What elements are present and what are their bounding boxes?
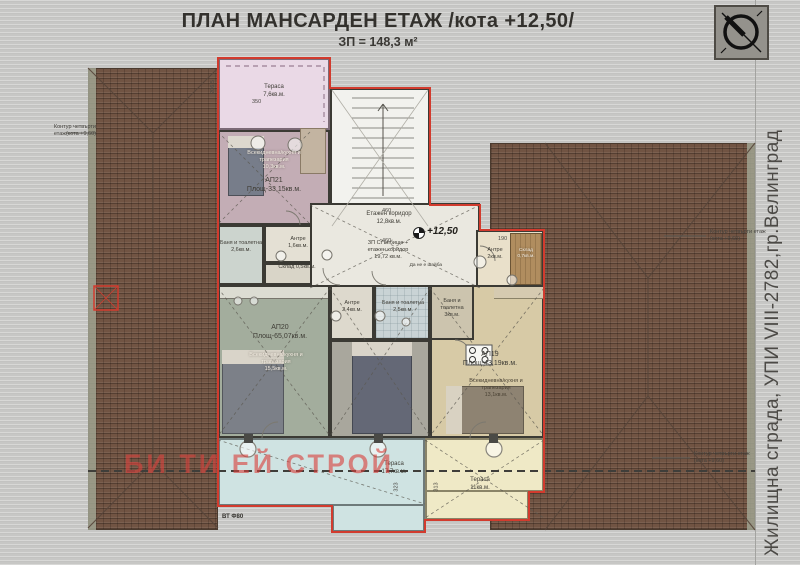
label-storage-ap21: Склад 0,5кв.м. xyxy=(270,264,324,271)
dim-corridor-b: 460 xyxy=(382,238,391,244)
room-terrace-main-ext xyxy=(332,504,425,532)
contour-note-right-top: Контур четвърти етаж (кота +9,60) xyxy=(710,229,794,243)
bed-ap20-2-pillow xyxy=(352,342,412,356)
page-subtitle: ЗП = 148,3 м² xyxy=(0,35,756,49)
dim-terrace-a: 323 xyxy=(394,482,400,491)
label-bath-ap20: Баня и тоалетна2,5кв.м. xyxy=(377,300,429,314)
kitchen-counter-ap20 xyxy=(220,287,328,299)
dim-terrace-top: 350 xyxy=(252,99,261,105)
elevation-label: +12,50 xyxy=(427,226,458,237)
builder-watermark: БИ ТИ ЕЙ СТРОЙ xyxy=(124,449,394,480)
label-living-ap19: Всекидневна/кухня итрапезария13,1кв.м. xyxy=(458,378,534,399)
label-antre-ap21: Антре1,6кв.м. xyxy=(276,236,320,250)
label-terrace-ap21: Тераса7,6кв.м. xyxy=(244,84,304,99)
page-title: ПЛАН МАНСАРДЕН ЕТАЖ /кота +12,50/ xyxy=(0,10,756,33)
label-antre-ap20: Антре2,4кв.м. xyxy=(332,300,372,314)
room-stairwell xyxy=(330,88,430,205)
label-ap21: АП21Площ-33,15кв.м. xyxy=(234,177,314,195)
label-bath-ap21: Баня и тоалетна2,6кв.м. xyxy=(219,240,263,254)
north-arrow-icon xyxy=(714,5,769,60)
plan-sheet: ПЛАН МАНСАРДЕН ЕТАЖ /кота +12,50/ ЗП = 1… xyxy=(0,0,800,565)
sheet-margin-line xyxy=(755,0,756,565)
dim-terrace-b: 313 xyxy=(434,482,440,491)
vt-pipe-note: ВТ Ф80 xyxy=(222,514,243,520)
roof-right-gutter xyxy=(747,143,755,530)
contour-note-right-bottom: Контур четвърти етаж (кота +9,60) xyxy=(694,451,778,465)
project-side-label: Жилищна сграда, УПИ VIII-2782,гр.Велингр… xyxy=(762,86,784,556)
label-storage-ap19: Склад0,7кв.м. xyxy=(508,248,544,260)
dim-corridor-a: 460 xyxy=(382,208,391,214)
bed-ap21-pillow xyxy=(228,136,264,148)
contour-note-left: Контур четвърти етаж(кота +9,60) xyxy=(20,124,96,138)
room-bath-ap21 xyxy=(218,225,264,285)
label-antre-ap19: Антре2кв.м. xyxy=(480,247,510,261)
dim-side-ap21: 206.5 xyxy=(210,80,216,94)
label-living-ap20: Всекидневна/кухня итрапезария15,5кв.м. xyxy=(238,352,314,373)
dim-entry-ap19: 190 xyxy=(498,236,507,242)
label-living-ap21: Всекидневна/кухня итрапезария10,3кв.м. xyxy=(232,150,316,171)
kitchen-counter-ap19 xyxy=(494,287,544,299)
room-terrace-ap19-ext xyxy=(425,490,529,520)
label-ap19: АП19Площ-43,19кв.м. xyxy=(448,351,532,369)
label-ap20: АП20Площ-65,07кв.м. xyxy=(240,324,320,342)
label-bath-ap19: Баня и тоалетна3кв.м. xyxy=(431,298,473,319)
label-terrace-ap19: Тераса11кв.м. xyxy=(448,477,512,492)
label-slab-note: Да не е шайба xyxy=(398,263,442,269)
